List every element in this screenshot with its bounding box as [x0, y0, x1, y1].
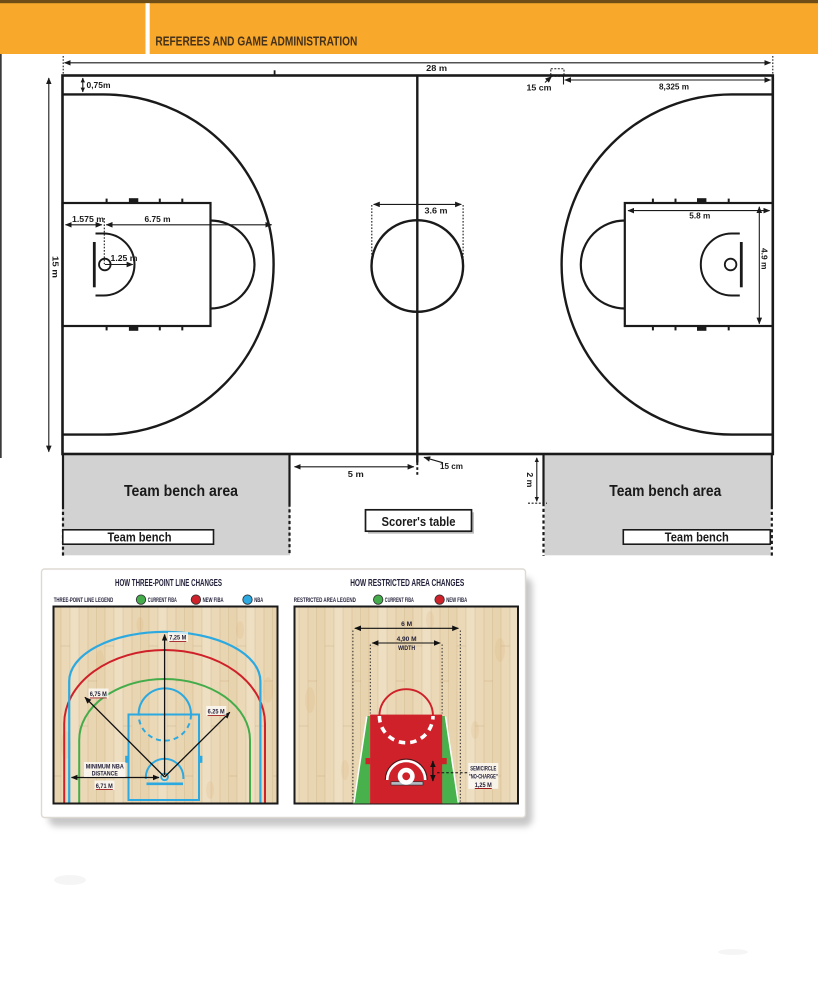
svg-text:15 cm: 15 cm	[527, 83, 552, 92]
svg-text:6,75 M: 6,75 M	[90, 691, 107, 698]
svg-text:Team bench area: Team bench area	[124, 483, 238, 500]
svg-text:28 m: 28 m	[426, 64, 447, 73]
svg-text:THREE-POINT LINE LEGEND: THREE-POINT LINE LEGEND	[54, 598, 114, 604]
svg-text:SEMICIRCLE: SEMICIRCLE	[470, 765, 496, 772]
svg-text:8,325 m: 8,325 m	[659, 83, 689, 92]
svg-text:1.25 m: 1.25 m	[111, 254, 138, 263]
svg-text:NBA: NBA	[254, 598, 263, 604]
svg-text:6.75 m: 6.75 m	[145, 215, 171, 224]
svg-text:5 m: 5 m	[348, 470, 364, 479]
svg-text:7,25 M: 7,25 M	[169, 635, 186, 642]
svg-text:WIDTH: WIDTH	[398, 645, 415, 652]
svg-text:0,75m: 0,75m	[87, 81, 111, 90]
svg-text:CURRENT FIBA: CURRENT FIBA	[385, 598, 414, 604]
svg-text:Team bench: Team bench	[108, 529, 172, 544]
svg-text:15 cm: 15 cm	[440, 462, 463, 471]
svg-text:Team bench area: Team bench area	[609, 483, 721, 500]
svg-text:MINIMUM NBA: MINIMUM NBA	[86, 764, 124, 771]
svg-text:1.575 m: 1.575 m	[72, 215, 104, 224]
svg-text:4,90 M: 4,90 M	[397, 636, 417, 643]
svg-text:6.25 M: 6.25 M	[208, 709, 225, 716]
svg-text:Team bench: Team bench	[665, 529, 729, 544]
svg-text:Scorer's table: Scorer's table	[382, 514, 456, 529]
svg-text:"NO-CHARGE": "NO-CHARGE"	[469, 774, 498, 781]
svg-text:15 m: 15 m	[50, 256, 59, 278]
svg-text:4.9 m: 4.9 m	[760, 248, 769, 270]
svg-text:3.6 m: 3.6 m	[425, 207, 448, 216]
svg-text:6,71 M: 6,71 M	[96, 783, 113, 790]
svg-text:6 M: 6 M	[401, 621, 412, 628]
svg-text:5.8 m: 5.8 m	[689, 212, 710, 221]
svg-text:NEW FIBA: NEW FIBA	[446, 598, 467, 604]
svg-text:CURRENT FIBA: CURRENT FIBA	[148, 598, 177, 604]
svg-text:REFEREES AND GAME ADMINISTRATI: REFEREES AND GAME ADMINISTRATION	[155, 35, 357, 49]
svg-text:NEW FIBA: NEW FIBA	[203, 598, 224, 604]
svg-text:HOW THREE-POINT LINE CHANGES: HOW THREE-POINT LINE CHANGES	[115, 578, 222, 589]
svg-text:1,25 M: 1,25 M	[475, 782, 492, 789]
svg-text:2 m: 2 m	[525, 472, 534, 487]
svg-text:HOW RESTRICTED AREA CHANGES: HOW RESTRICTED AREA CHANGES	[350, 578, 464, 589]
svg-text:DISTANCE: DISTANCE	[92, 771, 118, 778]
svg-text:RESTRICTED AREA LEGEND: RESTRICTED AREA LEGEND	[294, 598, 356, 604]
